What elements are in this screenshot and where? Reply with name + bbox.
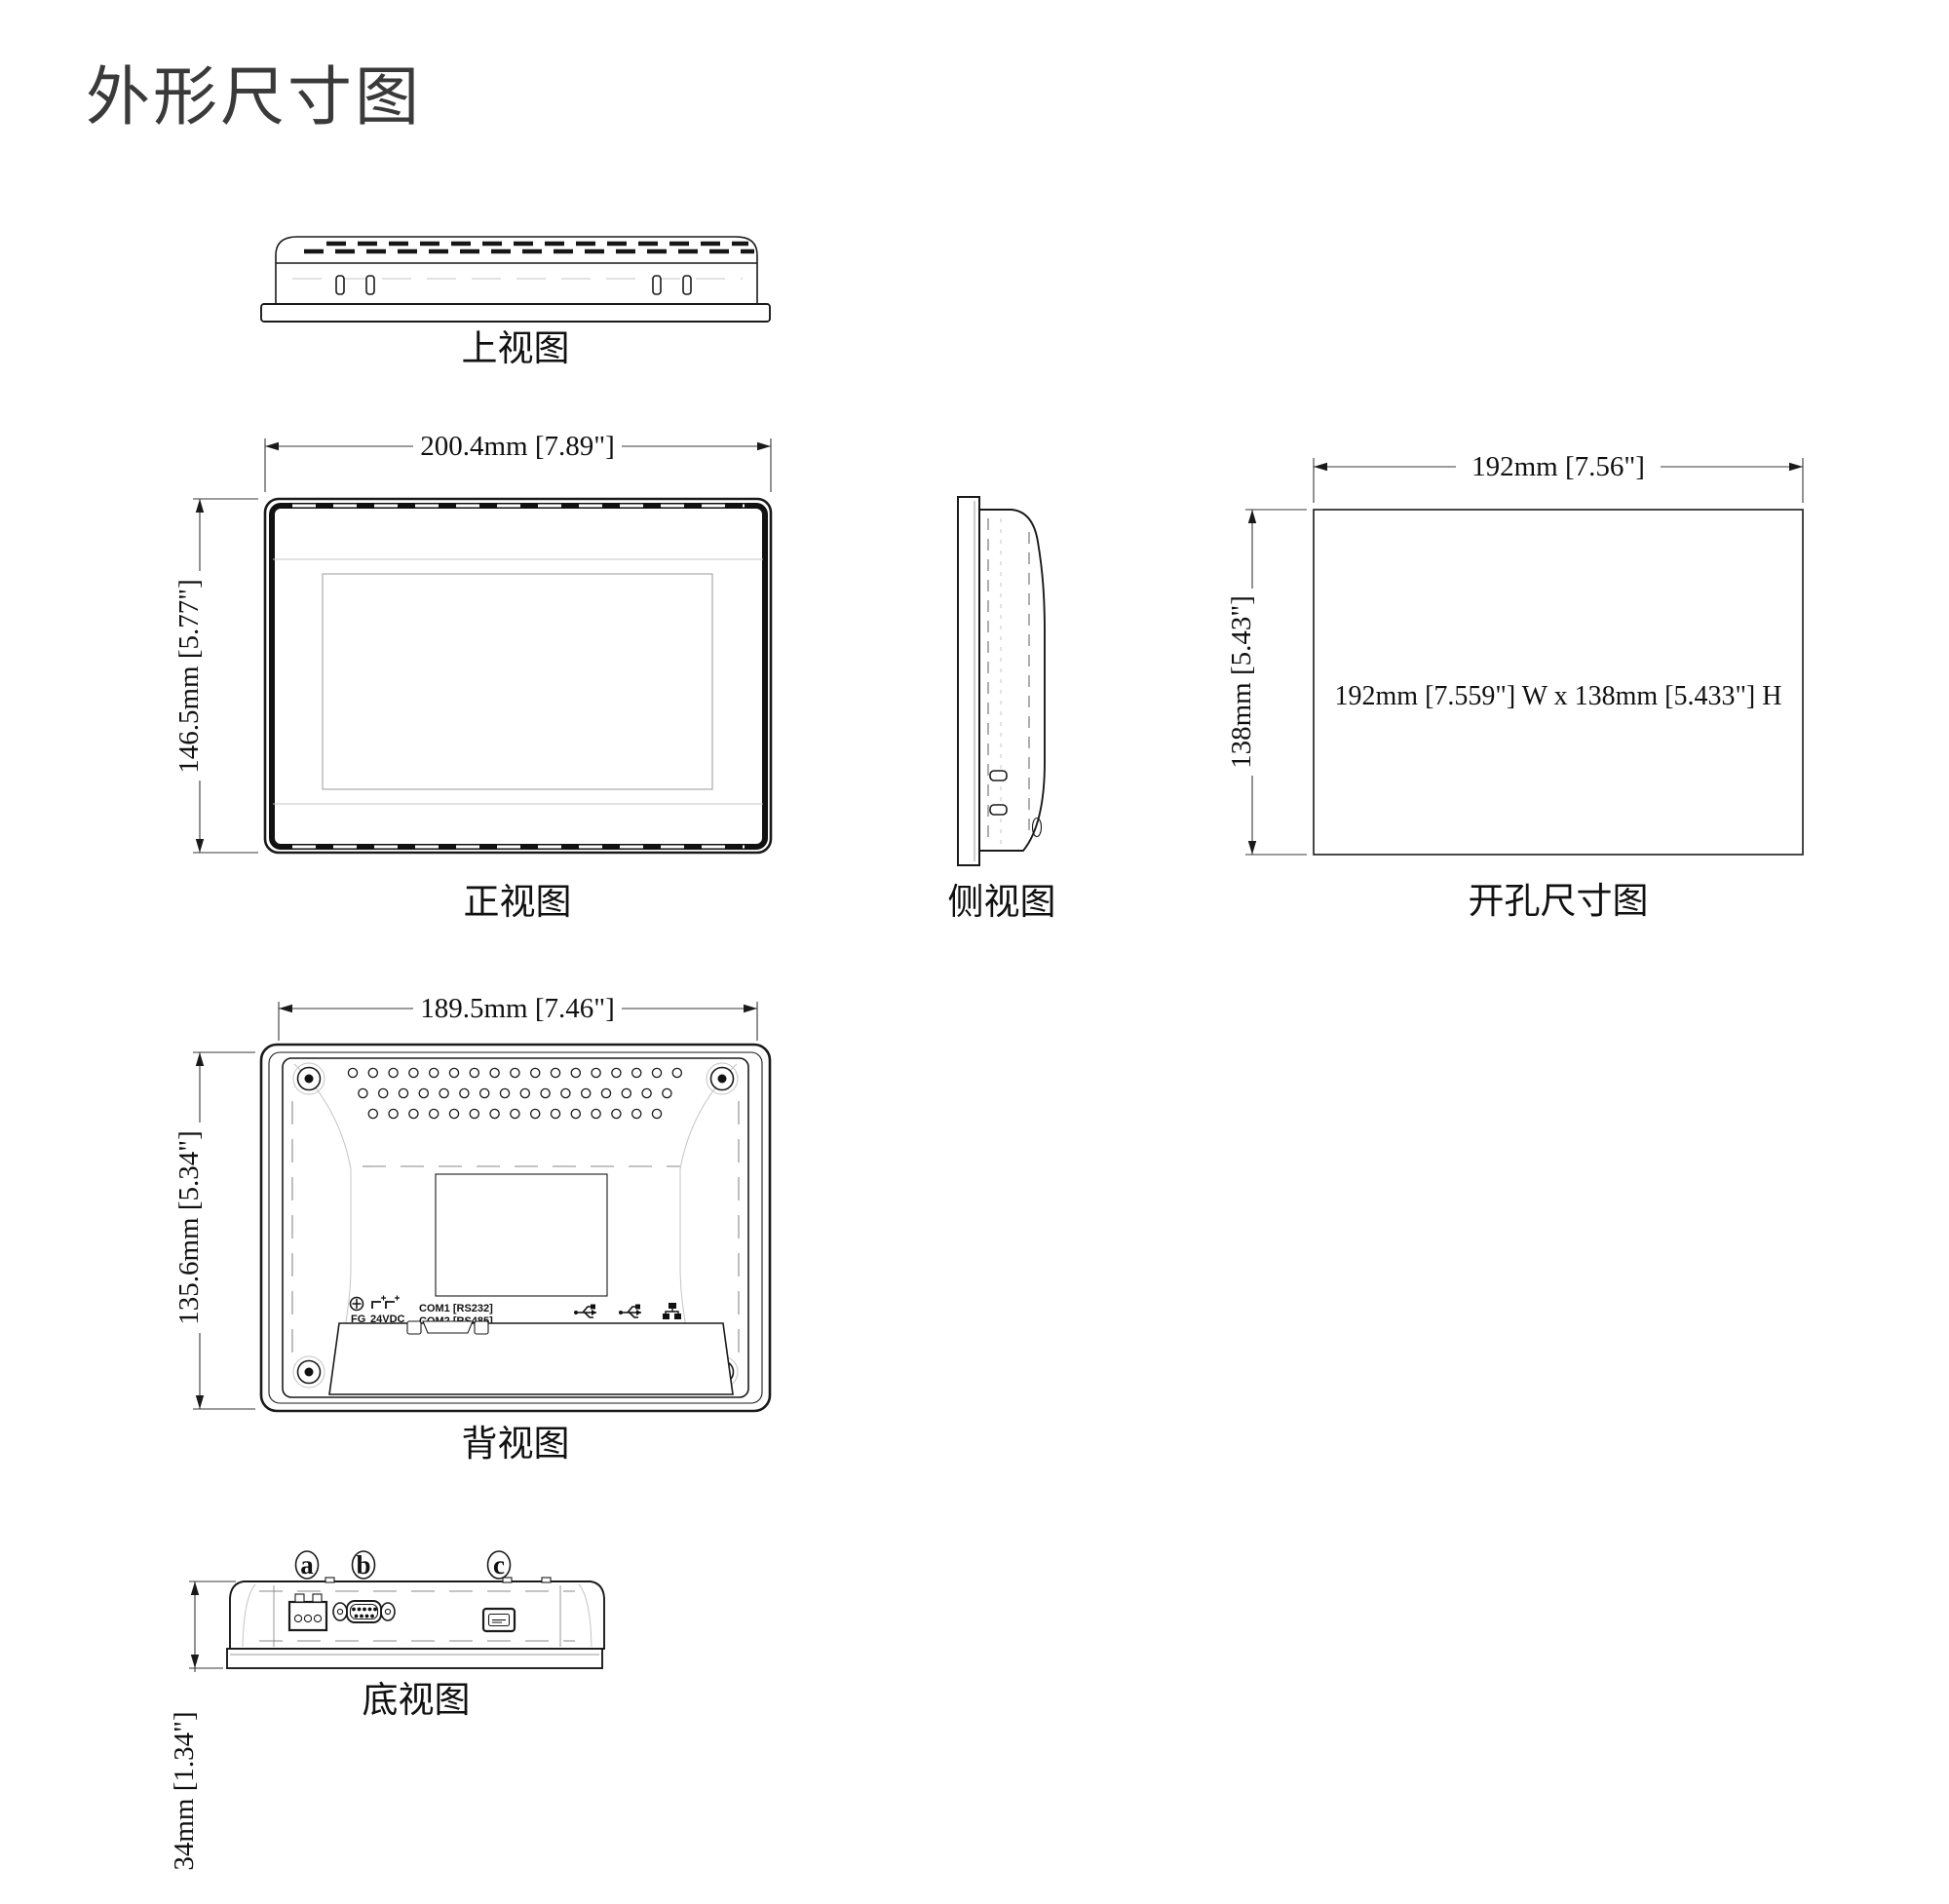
rear-mounting-recess bbox=[436, 1174, 607, 1296]
callout-b: b bbox=[353, 1550, 375, 1580]
vent-hole bbox=[439, 1088, 448, 1097]
bottom-view: a b c bbox=[169, 1550, 604, 1871]
vent-hole bbox=[561, 1088, 570, 1097]
top-clip-slot bbox=[653, 276, 661, 294]
side-view: 侧视图 bbox=[948, 497, 1056, 923]
vent-hole bbox=[368, 1109, 377, 1118]
rear-view-label: 背视图 bbox=[462, 1424, 570, 1465]
screw-hole bbox=[707, 1063, 738, 1094]
rear-vent-holes bbox=[348, 1068, 681, 1118]
vent-hole bbox=[531, 1068, 540, 1077]
side-corner-detail bbox=[1033, 819, 1042, 837]
side-body-outline bbox=[979, 510, 1045, 851]
cutout-width-dim-text: 192mm [7.56"] bbox=[1471, 451, 1645, 482]
callout-c-label: c bbox=[493, 1550, 505, 1580]
cutout-view-label: 开孔尺寸图 bbox=[1469, 882, 1649, 922]
ground-icon bbox=[351, 1298, 363, 1311]
usb-icon bbox=[574, 1305, 596, 1318]
vent-hole bbox=[359, 1088, 367, 1097]
com1-label: COM1 [RS232] bbox=[419, 1303, 493, 1314]
vent-hole bbox=[632, 1068, 641, 1077]
vent-hole bbox=[601, 1088, 610, 1097]
bottom-height-dim-text: 34mm [1.34"] bbox=[169, 1711, 200, 1870]
bottom-height-dimension: 34mm [1.34"] bbox=[169, 1581, 236, 1871]
vent-hole bbox=[672, 1068, 681, 1077]
vent-hole bbox=[571, 1068, 580, 1077]
cutout-width-dimension: 192mm [7.56"] bbox=[1314, 451, 1803, 503]
side-clip-slot bbox=[990, 771, 1007, 781]
screw-hole bbox=[293, 1356, 325, 1388]
bottom-bezel-flange bbox=[227, 1649, 602, 1668]
vent-hole bbox=[642, 1088, 651, 1097]
side-front-bezel bbox=[958, 497, 979, 865]
vent-hole bbox=[430, 1109, 439, 1118]
bottom-top-tab bbox=[503, 1578, 512, 1582]
top-clip-slot bbox=[336, 276, 344, 294]
cutout-height-dim-text: 138mm [5.43"] bbox=[1226, 595, 1257, 769]
front-view: 200.4mm [7.89"] 146.5mm [5.77"] 正视图 bbox=[173, 431, 771, 923]
front-height-dim-text: 146.5mm [5.77"] bbox=[173, 579, 205, 774]
cutout-note-text: 192mm [7.559"] W x 138mm [5.433"] H bbox=[1335, 681, 1782, 711]
rear-port-markings: FG 24VDC COM1 [RS232] COM2 [RS485] bbox=[351, 1296, 682, 1328]
vent-hole bbox=[490, 1068, 499, 1077]
vent-hole bbox=[531, 1109, 540, 1118]
vent-hole bbox=[348, 1068, 357, 1077]
vent-hole bbox=[541, 1088, 550, 1097]
page-title: 外形尺寸图 bbox=[86, 60, 422, 133]
front-panel-outline bbox=[265, 499, 771, 853]
vent-hole bbox=[652, 1068, 661, 1077]
vent-hole bbox=[511, 1109, 519, 1118]
vent-hole bbox=[389, 1109, 398, 1118]
vent-hole bbox=[470, 1109, 478, 1118]
rear-width-dimension: 189.5mm [7.46"] bbox=[279, 993, 757, 1041]
callout-a: a bbox=[296, 1550, 319, 1580]
mini-usb-connector bbox=[483, 1609, 515, 1631]
vent-hole bbox=[399, 1088, 407, 1097]
callout-b-label: b bbox=[356, 1550, 370, 1580]
callout-a-label: a bbox=[300, 1550, 314, 1580]
vent-hole bbox=[612, 1109, 621, 1118]
bottom-top-tab bbox=[325, 1578, 334, 1582]
vent-hole bbox=[449, 1109, 458, 1118]
bottom-top-tab bbox=[542, 1578, 551, 1582]
vent-hole bbox=[622, 1088, 631, 1097]
vent-hole bbox=[592, 1109, 600, 1118]
vent-hole bbox=[571, 1109, 580, 1118]
front-view-label: 正视图 bbox=[464, 883, 572, 923]
vent-hole bbox=[368, 1068, 377, 1077]
rear-connector-panel bbox=[329, 1323, 733, 1394]
vent-hole bbox=[419, 1088, 428, 1097]
vent-hole bbox=[551, 1068, 559, 1077]
side-clip-slot bbox=[990, 805, 1007, 815]
dimension-drawing-page: 外形尺寸图 上视图 200.4mm [7.89"] 146.5mm [5 bbox=[0, 0, 1949, 1904]
top-clip-slot bbox=[683, 276, 691, 294]
rear-db9-cutout bbox=[407, 1321, 488, 1334]
vent-hole bbox=[582, 1088, 591, 1097]
vent-hole bbox=[389, 1068, 398, 1077]
side-view-label: 侧视图 bbox=[948, 883, 1056, 923]
rear-view: 189.5mm [7.46"] 135.6mm [5.34"] bbox=[173, 993, 770, 1465]
top-clip-slot bbox=[366, 276, 374, 294]
power-terminal-icon bbox=[372, 1296, 400, 1310]
front-panel-bezel bbox=[272, 506, 765, 847]
vent-hole bbox=[511, 1068, 519, 1077]
ethernet-icon bbox=[663, 1303, 681, 1319]
vent-hole bbox=[480, 1088, 489, 1097]
cutout-view: 192mm [7.56"] 138mm [5.43"] 192mm [7.559… bbox=[1226, 451, 1803, 922]
db9-connector bbox=[333, 1601, 395, 1622]
vent-hole bbox=[551, 1109, 559, 1118]
front-display-area bbox=[323, 574, 712, 789]
top-view-label: 上视图 bbox=[462, 329, 570, 369]
bottom-view-label: 底视图 bbox=[363, 1680, 471, 1721]
vent-hole bbox=[409, 1109, 418, 1118]
usb-icon bbox=[619, 1305, 641, 1318]
callout-c: c bbox=[488, 1550, 511, 1580]
front-height-dimension: 146.5mm [5.77"] bbox=[173, 499, 258, 853]
cutout-height-dimension: 138mm [5.43"] bbox=[1226, 510, 1307, 855]
vent-hole bbox=[612, 1068, 621, 1077]
vent-hole bbox=[379, 1088, 388, 1097]
vent-hole bbox=[490, 1109, 499, 1118]
vent-hole bbox=[449, 1068, 458, 1077]
screw-hole bbox=[293, 1063, 325, 1094]
vent-hole bbox=[520, 1088, 529, 1097]
rear-height-dimension: 135.6mm [5.34"] bbox=[173, 1052, 255, 1409]
rear-height-dim-text: 135.6mm [5.34"] bbox=[173, 1130, 205, 1325]
vent-hole bbox=[652, 1109, 661, 1118]
vent-hole bbox=[470, 1068, 478, 1077]
top-view: 上视图 bbox=[261, 237, 770, 369]
vent-hole bbox=[663, 1088, 671, 1097]
vent-hole bbox=[460, 1088, 469, 1097]
vent-hole bbox=[409, 1068, 418, 1077]
front-width-dimension: 200.4mm [7.89"] bbox=[265, 431, 771, 492]
rear-width-dim-text: 189.5mm [7.46"] bbox=[420, 993, 615, 1024]
top-view-bezel-flange bbox=[261, 304, 770, 322]
vent-hole bbox=[592, 1068, 600, 1077]
front-width-dim-text: 200.4mm [7.89"] bbox=[420, 431, 615, 462]
vent-hole bbox=[500, 1088, 509, 1097]
vent-hole bbox=[632, 1109, 641, 1118]
vent-hole bbox=[430, 1068, 439, 1077]
